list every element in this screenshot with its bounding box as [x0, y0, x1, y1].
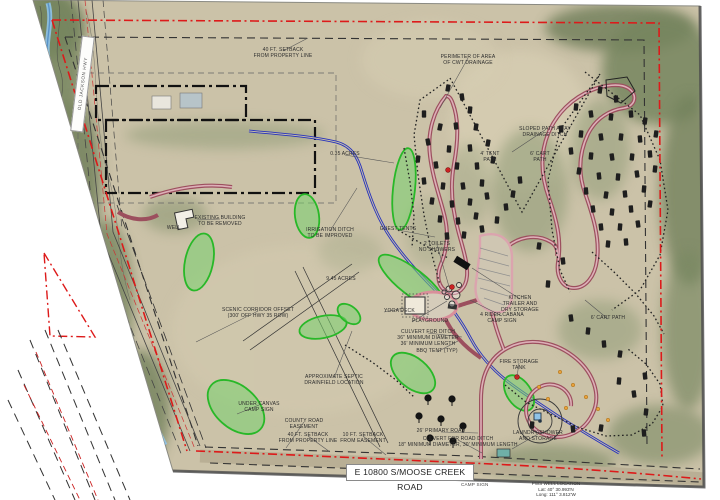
site-plan-sheet: 40 FT. SETBACKFROM PROPERTY LINEPERIMETE…	[0, 0, 720, 500]
tent-site	[560, 257, 565, 265]
tent-site	[617, 223, 622, 231]
tent-site	[618, 133, 623, 141]
tent-site	[583, 187, 588, 195]
tent-site	[449, 200, 454, 208]
orange-utility-dot	[558, 370, 562, 374]
laundry-shower-building	[497, 449, 510, 457]
tent-site	[467, 198, 472, 206]
tent-site	[517, 176, 522, 184]
tent-site	[529, 421, 534, 429]
offsite-highway-lines	[8, 330, 130, 500]
tent-site	[437, 215, 442, 223]
tent-site	[616, 377, 621, 385]
camp-sign-label: CAMP SIGN	[461, 482, 489, 487]
orange-utility-dot	[606, 418, 610, 422]
tent-site	[475, 162, 480, 169]
tent-site	[608, 113, 613, 121]
tent-site	[652, 165, 657, 173]
tent-site	[422, 110, 426, 117]
tent-site	[609, 208, 614, 216]
orange-utility-dot	[596, 407, 600, 411]
tent-site	[596, 172, 601, 180]
street-name-label: OLD JACKSON HWY	[77, 57, 88, 111]
tent-site	[605, 240, 610, 248]
red-utility-dot	[446, 168, 451, 173]
tent-site	[613, 95, 618, 103]
tent-site	[647, 150, 652, 158]
road-name-label: E 10800 S/MOOSE CREEK ROAD	[346, 464, 474, 481]
tent-site	[642, 372, 647, 380]
tent-site	[467, 106, 472, 114]
tent-site	[578, 130, 583, 138]
tent-site	[598, 223, 603, 231]
tent-site	[467, 144, 472, 152]
well-note-line3: Long: 111° 3.812'W	[498, 492, 614, 498]
tent-site	[545, 280, 550, 288]
tent-site	[573, 103, 578, 111]
site-plan-drawing	[0, 0, 720, 500]
tent-site	[629, 153, 634, 161]
orange-utility-dot	[537, 385, 541, 389]
tent-site	[440, 182, 445, 190]
orange-utility-dot	[584, 395, 588, 399]
tent-site	[623, 238, 628, 246]
tent-site	[588, 152, 593, 160]
tent-site	[615, 173, 620, 181]
tent-site	[461, 231, 466, 239]
tent-site	[454, 162, 459, 170]
tent-site	[628, 110, 633, 118]
tent-site	[585, 327, 590, 335]
tent-site	[421, 177, 426, 185]
red-utility-dot	[450, 285, 455, 290]
tent-site	[622, 190, 627, 198]
tent-site	[455, 217, 460, 225]
tent-site	[480, 179, 485, 186]
tent-site	[570, 425, 575, 433]
tent-site	[503, 203, 508, 211]
tent-site	[415, 155, 420, 163]
tent-site	[601, 340, 606, 348]
orange-utility-dot	[546, 397, 550, 401]
tent-site	[453, 122, 458, 130]
tent-site	[641, 429, 646, 437]
tent-site	[628, 205, 633, 213]
yoga-deck	[405, 297, 425, 314]
tent-site	[641, 185, 646, 193]
well-location-note: PWS WELL LOCATION Lat: 40° 30.993'N Long…	[498, 481, 614, 498]
tent-site	[444, 232, 449, 240]
orange-utility-dot	[571, 383, 575, 387]
tent-site	[494, 216, 499, 224]
tent-site	[568, 147, 573, 155]
orange-utility-dot	[564, 406, 568, 410]
tent-site	[447, 145, 452, 152]
tent-site	[643, 408, 648, 416]
tent-site	[637, 135, 642, 143]
tent-site	[558, 125, 563, 133]
